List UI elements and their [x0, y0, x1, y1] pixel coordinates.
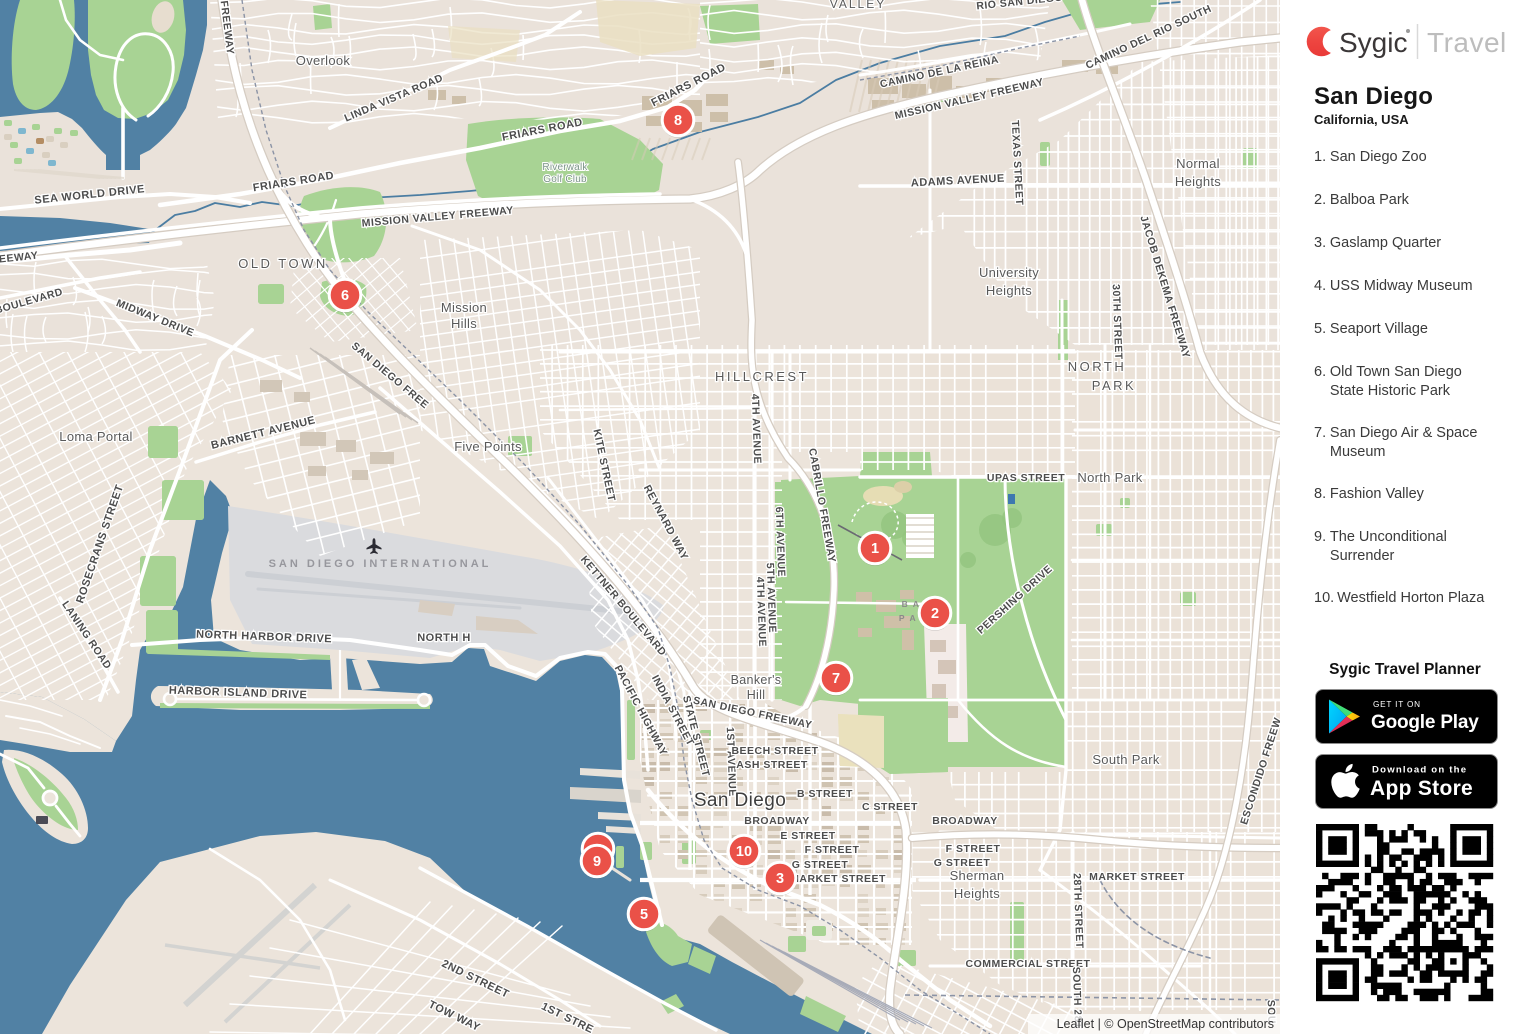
svg-text:OLD TOWN: OLD TOWN — [238, 256, 328, 271]
svg-text:ASH STREET: ASH STREET — [736, 759, 808, 771]
svg-text:HILLCREST: HILLCREST — [715, 369, 809, 384]
svg-text:4TH AVENUE: 4TH AVENUE — [754, 577, 768, 648]
svg-text:6: 6 — [341, 288, 349, 304]
svg-text:NORTH: NORTH — [1068, 359, 1126, 374]
svg-text:MARKET STREET: MARKET STREET — [790, 873, 886, 885]
svg-text:F STREET: F STREET — [805, 844, 860, 856]
svg-text:5: 5 — [640, 907, 648, 923]
svg-text:Banker's: Banker's — [731, 673, 782, 687]
svg-text:Sygic: Sygic — [1339, 27, 1407, 58]
svg-text:3: 3 — [776, 871, 784, 887]
svg-text:North Park: North Park — [1077, 470, 1142, 485]
svg-text:SAN DIEGO INTERNATIONAL: SAN DIEGO INTERNATIONAL — [269, 558, 492, 570]
svg-text:P A: P A — [899, 613, 917, 623]
svg-text:Travel: Travel — [1427, 27, 1507, 58]
svg-text:9: 9 — [593, 854, 601, 870]
svg-text:University: University — [979, 265, 1039, 280]
svg-text:App Store: App Store — [1370, 777, 1473, 800]
svg-text:7: 7 — [832, 671, 840, 687]
svg-text:B STREET: B STREET — [797, 788, 853, 800]
svg-text:G STREET: G STREET — [792, 859, 849, 871]
svg-text:BROADWAY: BROADWAY — [932, 815, 997, 827]
svg-text:F STREET: F STREET — [946, 843, 1001, 855]
svg-text:Sherman: Sherman — [950, 868, 1005, 883]
svg-text:San Diego: San Diego — [694, 790, 786, 811]
svg-text:Normal: Normal — [1176, 156, 1220, 171]
svg-text:Mission: Mission — [441, 300, 487, 315]
svg-text:Heights: Heights — [1175, 174, 1221, 189]
svg-text:Golf Club: Golf Club — [543, 174, 587, 185]
svg-text:Riverwalk: Riverwalk — [542, 162, 588, 173]
svg-text:8: 8 — [674, 113, 682, 129]
svg-text:Download on the: Download on the — [1372, 765, 1467, 776]
svg-text:Overlook: Overlook — [296, 53, 351, 68]
svg-text:4TH AVENUE: 4TH AVENUE — [749, 394, 763, 465]
svg-text:Hill: Hill — [747, 688, 766, 702]
svg-text:E STREET: E STREET — [780, 830, 835, 842]
svg-text:Loma Portal: Loma Portal — [59, 429, 132, 444]
svg-text:GET IT ON: GET IT ON — [1373, 700, 1421, 709]
svg-text:2: 2 — [931, 606, 939, 622]
svg-text:VALLEY: VALLEY — [830, 0, 886, 11]
svg-text:NORTH H: NORTH H — [417, 632, 471, 644]
svg-text:Google Play: Google Play — [1371, 712, 1479, 733]
svg-text:Hills: Hills — [451, 316, 477, 331]
svg-text:Heights: Heights — [986, 283, 1032, 298]
svg-text:UPAS STREET: UPAS STREET — [987, 472, 1065, 484]
svg-text:BROADWAY: BROADWAY — [744, 815, 809, 827]
svg-text:Leaflet | © OpenStreetMap cont: Leaflet | © OpenStreetMap contributors — [1057, 1017, 1274, 1031]
svg-text:Five Points: Five Points — [454, 439, 522, 454]
svg-text:PARK: PARK — [1092, 378, 1136, 393]
svg-text:BEECH STREET: BEECH STREET — [731, 745, 818, 757]
svg-text:B A: B A — [902, 599, 921, 609]
svg-text:10: 10 — [736, 844, 752, 860]
svg-text:Heights: Heights — [954, 886, 1000, 901]
svg-text:South Park: South Park — [1092, 752, 1160, 767]
svg-text:1: 1 — [871, 541, 879, 557]
svg-text:C STREET: C STREET — [862, 801, 918, 813]
svg-text:MARKET STREET: MARKET STREET — [1089, 871, 1185, 883]
